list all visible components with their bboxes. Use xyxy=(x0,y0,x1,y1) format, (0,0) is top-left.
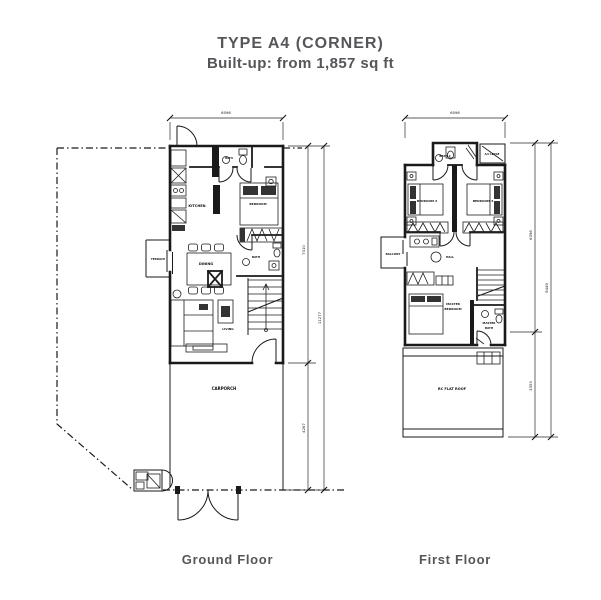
room-label-master-bath-2: BATH xyxy=(485,326,494,330)
room-label-master-bedroom-2: BEDROOM xyxy=(444,307,461,311)
ground-dim-lower: 4267 xyxy=(301,423,306,433)
room-label-bedroom3: BEDROOM 3 xyxy=(473,199,493,203)
room-label-terrace: TERRACE xyxy=(151,257,165,261)
floor-plan-page: TYPE A4 (CORNER) Built-up: from 1,857 sq… xyxy=(0,0,601,600)
first-dim-lower: 3353 xyxy=(528,381,533,391)
room-label-bath-top: BATH xyxy=(225,156,232,160)
room-label-dining: DINING xyxy=(199,262,213,266)
ground-stairs-icon xyxy=(248,278,283,335)
hall-furniture-icon xyxy=(410,236,441,262)
gate-and-meter-icon xyxy=(134,470,241,520)
ground-dim-total: 11277 xyxy=(317,311,322,324)
room-label-flat-roof: RC FLAT ROOF xyxy=(438,387,467,391)
room-label-bath-lower: BATH xyxy=(252,255,261,259)
first-floor-caption: First Floor xyxy=(380,552,530,567)
kitchen-counter-icon xyxy=(171,150,186,231)
flat-roof xyxy=(403,348,503,437)
first-dim-total: 9449 xyxy=(544,283,549,293)
room-label-carporch: CARPORCH xyxy=(212,386,237,391)
room-label-bedroom2: BEDROOM 2 xyxy=(417,199,437,203)
room-label-bedroom: BEDROOM xyxy=(249,202,266,206)
first-dim-upper: 6096 xyxy=(528,230,533,240)
ground-bed-icon xyxy=(240,177,278,225)
room-label-balcony: BALCONY xyxy=(386,252,402,256)
sofa-set-icon xyxy=(171,290,233,346)
site-boundary xyxy=(57,148,345,490)
room-label-master-bedroom-1: MASTER xyxy=(446,302,461,306)
ground-dim-upper: 7010 xyxy=(301,245,306,255)
room-label-kitchen: KITCHEN xyxy=(188,204,205,208)
floor-plans-drawing: 6096 7010 4267 11277 TERRACE KITCHEN DIN… xyxy=(0,0,601,600)
ground-floor-caption: Ground Floor xyxy=(130,552,325,567)
room-label-bath2: BATH 2 xyxy=(439,154,450,158)
first-stairs-icon xyxy=(478,270,505,300)
tv-console-icon xyxy=(186,344,227,352)
ground-bath-lower-fixtures-icon xyxy=(243,243,282,270)
first-floor-plan: 6096 6096 3353 9449 BATH 2 A/C LEDGE BED… xyxy=(381,110,558,440)
room-label-ac-ledge: A/C LEDGE xyxy=(485,152,500,156)
ground-dim-width: 6096 xyxy=(221,110,231,115)
first-dim-width: 6096 xyxy=(450,110,460,115)
room-label-hall: HALL xyxy=(446,255,454,259)
room-label-master-bath-1: MASTER xyxy=(483,321,497,325)
ground-floor-plan: 6096 7010 4267 11277 TERRACE KITCHEN DIN… xyxy=(57,110,345,520)
room-label-living: LIVING xyxy=(222,327,234,331)
